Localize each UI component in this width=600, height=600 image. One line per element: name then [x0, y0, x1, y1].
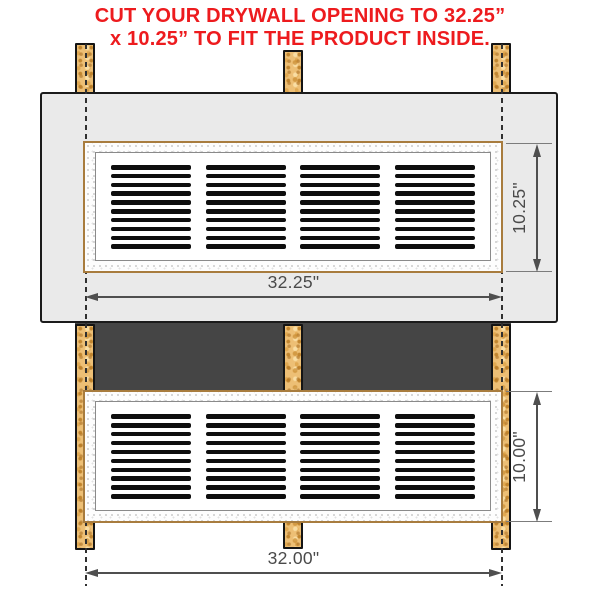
louver-slat — [206, 200, 286, 205]
louver-slat — [206, 174, 286, 179]
louver-slat — [206, 165, 286, 170]
louver-slat — [300, 485, 380, 490]
louver-slat — [111, 441, 191, 446]
louver-slat — [300, 183, 380, 188]
louver-slat — [206, 236, 286, 241]
louver-slat — [395, 244, 475, 249]
louver-slat — [395, 485, 475, 490]
grille-louver-panel-top — [95, 152, 491, 261]
louver-slat — [395, 236, 475, 241]
vent-grille-bottom — [83, 390, 503, 523]
louver-slat — [206, 441, 286, 446]
arrowhead-left-icon — [85, 293, 98, 301]
louver-slat — [395, 218, 475, 223]
louver-slat — [206, 459, 286, 464]
louver-slat — [111, 414, 191, 419]
louver-slat — [395, 183, 475, 188]
louver-group — [206, 165, 286, 249]
louver-slat — [111, 218, 191, 223]
grille-louver-panel-bottom — [95, 401, 491, 511]
louver-slat — [395, 191, 475, 196]
louver-slat — [111, 450, 191, 455]
louver-slat — [206, 191, 286, 196]
extension-line-bottom-lower — [506, 521, 552, 522]
arrowhead-up-icon — [533, 144, 541, 157]
dimension-label-height-top: 10.25" — [509, 182, 530, 234]
louver-slat — [300, 494, 380, 499]
louver-slat — [111, 432, 191, 437]
louver-slat — [300, 209, 380, 214]
dimension-label-width-bottom: 32.00" — [268, 548, 320, 569]
dimension-line — [536, 153, 537, 263]
louver-slat — [395, 450, 475, 455]
louver-slat — [300, 468, 380, 473]
louver-slat — [111, 191, 191, 196]
louver-slat — [206, 432, 286, 437]
louver-slat — [300, 432, 380, 437]
louver-slat — [395, 441, 475, 446]
arrowhead-right-icon — [489, 293, 502, 301]
louver-slat — [395, 494, 475, 499]
extension-line-bottom-upper — [506, 391, 552, 392]
louver-slat — [300, 165, 380, 170]
louver-slat — [395, 165, 475, 170]
louver-group — [395, 165, 475, 249]
arrowhead-down-icon — [533, 509, 541, 522]
louver-slat — [395, 432, 475, 437]
louver-slat — [111, 476, 191, 481]
louver-slat — [111, 209, 191, 214]
arrowhead-down-icon — [533, 259, 541, 272]
louver-slat — [300, 236, 380, 241]
louver-slat — [111, 174, 191, 179]
title-line-1: CUT YOUR DRYWALL OPENING TO 32.25” — [0, 5, 600, 28]
louver-slat — [395, 423, 475, 428]
louver-slat — [206, 450, 286, 455]
louver-slat — [111, 165, 191, 170]
louver-slat — [206, 218, 286, 223]
louver-slat — [206, 476, 286, 481]
louver-group — [111, 165, 191, 249]
louver-slat — [300, 441, 380, 446]
louver-slat — [206, 468, 286, 473]
louver-slat — [206, 423, 286, 428]
louver-slat — [206, 485, 286, 490]
louver-slat — [111, 183, 191, 188]
louver-slat — [111, 244, 191, 249]
louver-slat — [111, 227, 191, 232]
louver-slat — [395, 476, 475, 481]
louver-slat — [206, 209, 286, 214]
louver-slat — [111, 459, 191, 464]
louver-slat — [206, 183, 286, 188]
louver-slat — [395, 459, 475, 464]
louver-slat — [111, 485, 191, 490]
louver-slat — [395, 227, 475, 232]
louver-slat — [300, 227, 380, 232]
louver-slat — [300, 174, 380, 179]
louver-slat — [111, 236, 191, 241]
louver-slat — [300, 476, 380, 481]
louver-slat — [111, 468, 191, 473]
dimension-line — [536, 401, 537, 513]
louver-slat — [206, 244, 286, 249]
louver-group — [300, 165, 380, 249]
louver-group — [111, 414, 191, 499]
dimension-line — [94, 296, 493, 297]
stud-top-center — [283, 50, 303, 98]
dimension-label-height-bottom: 10.00" — [509, 431, 530, 483]
louver-slat — [111, 200, 191, 205]
vent-grille-top — [83, 141, 503, 273]
louver-group — [395, 414, 475, 499]
louver-slat — [300, 414, 380, 419]
louver-slat — [300, 244, 380, 249]
louver-slat — [395, 209, 475, 214]
arrowhead-right-icon — [489, 569, 502, 577]
dimension-line — [94, 572, 493, 573]
extension-line-top-lower — [506, 271, 552, 272]
louver-slat — [300, 218, 380, 223]
dimension-label-width-top: 32.25" — [268, 272, 320, 293]
louver-slat — [395, 200, 475, 205]
louver-slat — [300, 191, 380, 196]
louver-slat — [111, 423, 191, 428]
installation-diagram: CUT YOUR DRYWALL OPENING TO 32.25” x 10.… — [0, 0, 600, 600]
louver-slat — [395, 468, 475, 473]
louver-slat — [300, 200, 380, 205]
louver-group — [300, 414, 380, 499]
arrowhead-left-icon — [85, 569, 98, 577]
louver-slat — [395, 414, 475, 419]
louver-slat — [206, 494, 286, 499]
louver-slat — [300, 450, 380, 455]
louver-slat — [206, 414, 286, 419]
louver-slat — [300, 459, 380, 464]
louver-slat — [395, 174, 475, 179]
louver-group — [206, 414, 286, 499]
louver-slat — [300, 423, 380, 428]
arrowhead-up-icon — [533, 392, 541, 405]
louver-slat — [111, 494, 191, 499]
louver-slat — [206, 227, 286, 232]
extension-line-top-upper — [506, 143, 552, 144]
